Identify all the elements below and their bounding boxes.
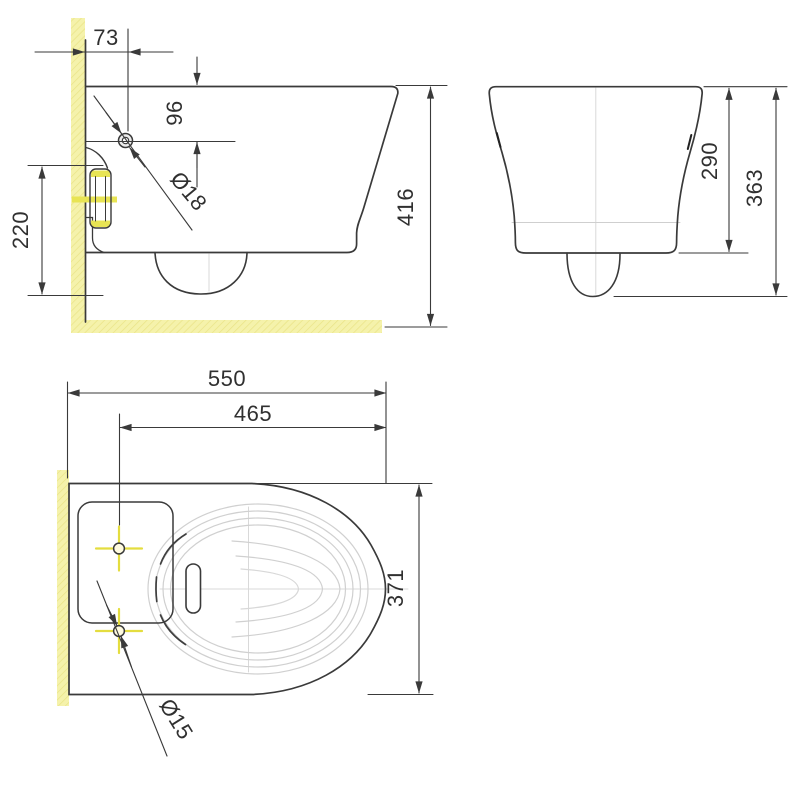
wall-hatch-plan xyxy=(57,470,69,706)
plan-tank-outline xyxy=(78,502,173,623)
dim-220 xyxy=(28,166,103,296)
floor-hatch xyxy=(71,320,382,333)
technical-drawing-canvas: 73 96 Ø18 220 416 xyxy=(0,0,800,800)
dim-290 xyxy=(679,87,787,253)
dim-550-label: 550 xyxy=(208,366,246,391)
pipe-highlight-top xyxy=(91,171,110,178)
tangent-dash-left xyxy=(497,133,501,147)
drawing-svg: 73 96 Ø18 220 416 xyxy=(0,0,800,800)
dim-220-label: 220 xyxy=(8,211,33,249)
front-view: 290 363 xyxy=(489,87,787,297)
dim-416-label: 416 xyxy=(393,188,418,226)
dim-363-label: 363 xyxy=(742,169,767,207)
pipe-highlight-axis xyxy=(72,197,117,203)
flush-opening xyxy=(186,564,201,613)
fixing-point-upper xyxy=(96,527,142,571)
fixing-point-lower xyxy=(96,609,142,653)
dim-hole15-label: Ø15 xyxy=(154,694,198,744)
side-view: 73 96 Ø18 220 416 xyxy=(8,18,447,333)
pipe-highlight-bottom xyxy=(91,221,110,228)
dim-371-label: 371 xyxy=(383,569,408,607)
plan-view: 550 465 371 Ø15 xyxy=(57,366,433,756)
callout-plan-hole-diameter xyxy=(97,581,167,756)
wall-hatch-side xyxy=(71,18,85,333)
outlet-front-outline xyxy=(567,253,620,297)
dim-96 xyxy=(86,57,235,187)
dim-465-label: 465 xyxy=(234,401,272,426)
dim-290-label: 290 xyxy=(697,142,722,180)
dim-73-label: 73 xyxy=(93,25,118,50)
drain-trap-outline xyxy=(155,253,247,295)
bowl-back-curve xyxy=(86,148,108,169)
dim-hole18-label: Ø18 xyxy=(165,167,212,216)
dim-550 xyxy=(68,382,387,483)
toilet-side-profile xyxy=(86,87,398,253)
dim-96-label: 96 xyxy=(162,100,187,125)
dim-465 xyxy=(120,414,387,525)
